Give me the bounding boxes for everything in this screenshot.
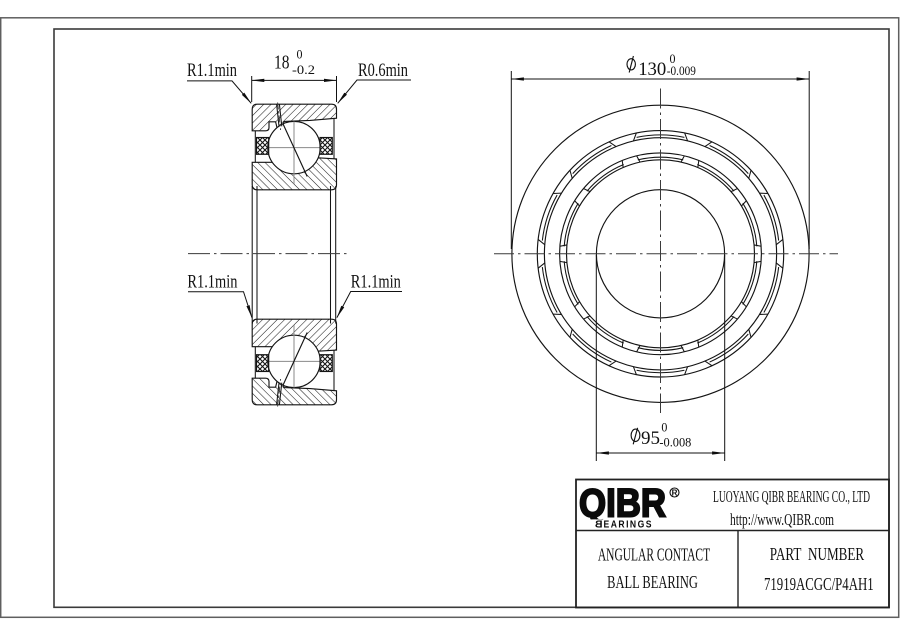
svg-text:0: 0 [297, 47, 303, 62]
svg-text:130: 130 [638, 59, 666, 80]
svg-text:R1.1min: R1.1min [187, 271, 237, 292]
svg-text:-0.2: -0.2 [292, 62, 315, 77]
svg-text:R1.1min: R1.1min [351, 271, 401, 292]
svg-text:PART NUMBER: PART NUMBER [770, 544, 864, 564]
svg-text:71919ACGC/P4AH1: 71919ACGC/P4AH1 [764, 574, 874, 594]
svg-text:95: 95 [641, 428, 660, 449]
svg-text:-0.009: -0.009 [667, 63, 696, 78]
svg-text:R: R [672, 489, 678, 498]
svg-text:ANGULAR CONTACT: ANGULAR CONTACT [598, 545, 710, 565]
svg-text:EARINGS: EARINGS [604, 519, 654, 531]
svg-text:B: B [595, 519, 603, 531]
svg-text:0: 0 [661, 419, 667, 434]
svg-text:-0.008: -0.008 [659, 435, 691, 450]
svg-text:http://www.QIBR.com: http://www.QIBR.com [730, 510, 834, 529]
svg-text:LUOYANG QIBR BEARING CO., LTD: LUOYANG QIBR BEARING CO., LTD [713, 487, 870, 506]
svg-text:R1.1min: R1.1min [187, 60, 237, 81]
svg-text:BALL BEARING: BALL BEARING [607, 572, 698, 592]
svg-text:R0.6min: R0.6min [358, 60, 408, 81]
svg-text:18: 18 [274, 53, 290, 74]
